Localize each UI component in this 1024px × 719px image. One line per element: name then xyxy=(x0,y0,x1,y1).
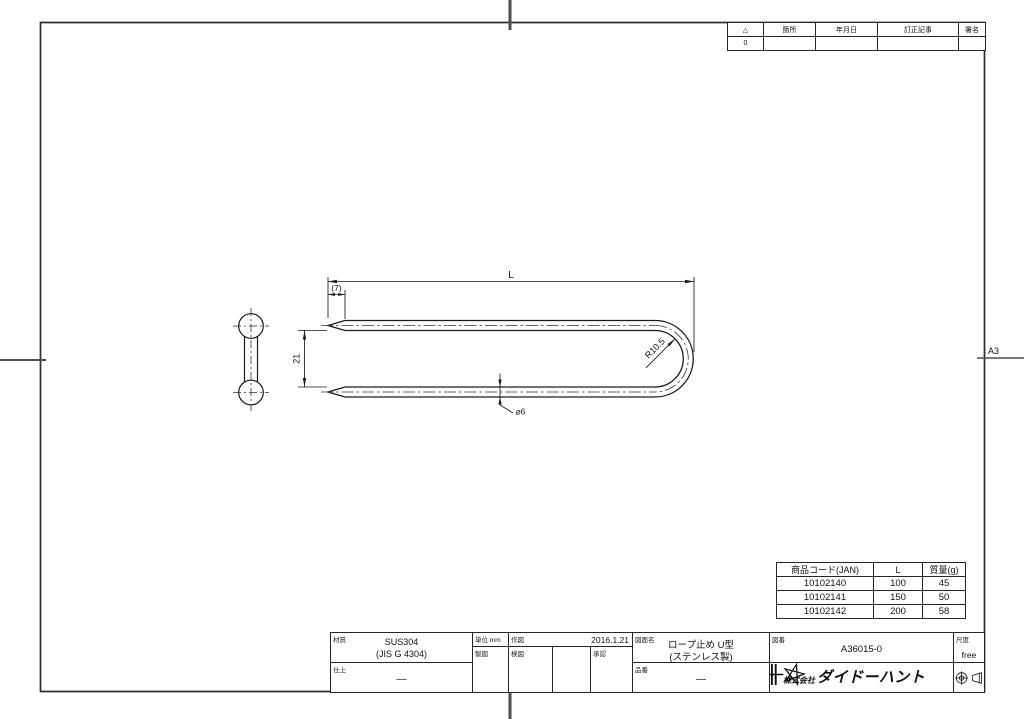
finish-label: 仕上 xyxy=(333,664,346,674)
company-cell: 株式会社 ダイドーハント xyxy=(769,662,954,693)
product-header: L xyxy=(874,563,923,577)
product-cell: 10102141 xyxy=(777,591,874,605)
product-cell: 45 xyxy=(923,577,966,591)
dim-radius-text: R10.5 xyxy=(643,336,667,360)
product-row: 10102141 150 50 xyxy=(777,591,966,605)
revision-header: 年月日 xyxy=(816,23,878,37)
drawn-label: 作図 xyxy=(511,634,524,644)
main-view-centerlines xyxy=(321,326,688,393)
dim-width-text: 21 xyxy=(292,354,302,364)
product-cell: 50 xyxy=(923,591,966,605)
dim-diameter-text: ⌀6 xyxy=(516,407,526,417)
scale-cell: 尺度 free xyxy=(953,632,985,663)
draft-label: 製図 xyxy=(475,648,488,658)
projection-symbol-icon xyxy=(955,670,985,686)
dim-length-text: L xyxy=(508,270,514,281)
revision-header: 箇所 xyxy=(764,23,816,37)
revision-header: 訂正記事 xyxy=(878,23,959,37)
revision-cell xyxy=(816,37,878,51)
check-cell: 検図 xyxy=(508,646,553,693)
stamp-cell xyxy=(552,646,591,693)
part-number-cell: 品番 — xyxy=(632,662,770,693)
part-number-label: 品番 xyxy=(635,664,648,674)
product-header-row: 商品コード(JAN) L 質量(g) xyxy=(777,563,966,577)
drawing-name-cell: 図面名 ロープ止め U型 (ステンレス製) xyxy=(632,632,770,663)
unit-cell: 単位 mm xyxy=(472,632,509,647)
product-cell: 100 xyxy=(874,577,923,591)
material-cell: 材質 SUS304 (JIS G 4304) xyxy=(330,632,473,663)
unit-label: 単位 mm xyxy=(475,634,501,644)
scale-value: free xyxy=(954,650,984,660)
check-label: 検図 xyxy=(511,648,524,658)
product-cell: 150 xyxy=(874,591,923,605)
dimensions xyxy=(298,277,694,413)
drawing-number-value: A36015-0 xyxy=(770,644,953,655)
dimension-arrows xyxy=(303,280,694,405)
product-cell: 200 xyxy=(874,605,923,619)
finish-cell: 仕上 — xyxy=(330,662,473,693)
company-logo: 株式会社 ダイドーハント xyxy=(770,663,953,692)
part-number-value: — xyxy=(633,674,769,685)
scale-label: 尺度 xyxy=(956,634,969,644)
product-cell: 10102142 xyxy=(777,605,874,619)
company-mark-icon xyxy=(770,663,808,686)
company-name: ダイドーハント xyxy=(817,666,925,687)
draft-cell: 製図 xyxy=(472,646,509,693)
product-row: 10102142 200 58 xyxy=(777,605,966,619)
revision-header-row: △ 箇所 年月日 訂正記事 署名 xyxy=(728,23,986,37)
finish-value: — xyxy=(331,674,472,685)
revision-cell xyxy=(764,37,816,51)
product-table: 商品コード(JAN) L 質量(g) 10102140 100 45 10102… xyxy=(776,562,966,619)
product-cell: 10102140 xyxy=(777,577,874,591)
drawn-date: 2016.1.21 xyxy=(591,635,629,645)
side-view xyxy=(233,308,269,411)
u-bolt-outline xyxy=(328,321,693,398)
product-row: 10102140 100 45 xyxy=(777,577,966,591)
product-header: 商品コード(JAN) xyxy=(777,563,874,577)
dimension-texts: L (7) 21 R10.5 ⌀6 xyxy=(292,270,667,417)
drawing-number-cell: 図番 A36015-0 xyxy=(769,632,954,663)
product-header: 質量(g) xyxy=(923,563,966,577)
drawing-number-label: 図番 xyxy=(772,634,785,644)
drawn-cell: 作図 2016.1.21 xyxy=(508,632,633,647)
material-value: SUS304 xyxy=(331,637,472,647)
product-cell: 58 xyxy=(923,605,966,619)
revision-cell xyxy=(959,37,986,51)
revision-cell xyxy=(878,37,959,51)
revision-row: 0 xyxy=(728,37,986,51)
drawing-sheet: A3 xyxy=(0,0,1024,719)
dim-tip-text: (7) xyxy=(331,283,342,293)
projection-cell xyxy=(953,662,985,693)
revision-cell: 0 xyxy=(728,37,764,51)
sheet-size-label: A3 xyxy=(988,346,999,356)
drawing-name-sub: (ステンレス製) xyxy=(633,649,769,663)
approve-cell: 承認 xyxy=(590,646,633,693)
revision-header: 署名 xyxy=(959,23,986,37)
material-spec: (JIS G 4304) xyxy=(331,649,472,659)
revision-table: △ 箇所 年月日 訂正記事 署名 0 xyxy=(727,22,986,51)
title-block: 材質 SUS304 (JIS G 4304) 仕上 — 単位 mm 作図 201… xyxy=(330,632,985,693)
revision-header: △ xyxy=(728,23,764,37)
approve-label: 承認 xyxy=(593,648,606,658)
main-view xyxy=(321,321,693,398)
